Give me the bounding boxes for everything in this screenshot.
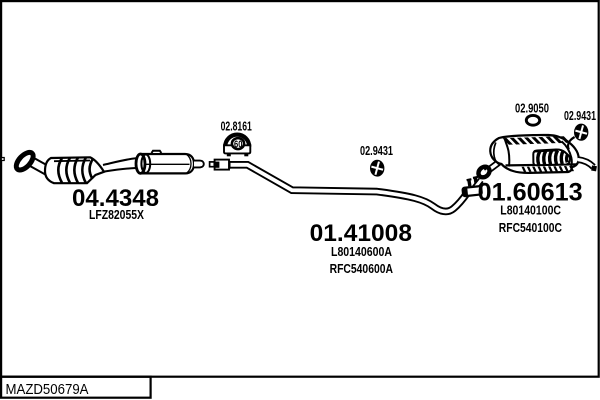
svg-text:02.9431: 02.9431 <box>360 143 393 158</box>
svg-text:02.9050: 02.9050 <box>515 101 549 116</box>
svg-text:LFZ82055X: LFZ82055X <box>89 207 144 222</box>
svg-text:02.9431: 02.9431 <box>564 108 596 123</box>
svg-text:L80140600A: L80140600A <box>331 244 392 259</box>
svg-text:01.41008: 01.41008 <box>310 220 412 247</box>
svg-text:L80140100C: L80140100C <box>500 202 561 217</box>
svg-text:60: 60 <box>234 140 243 151</box>
svg-text:RFC540100C: RFC540100C <box>499 220 563 235</box>
svg-text:RFC540600A: RFC540600A <box>330 261 394 276</box>
svg-text:MAZD50679A: MAZD50679A <box>6 382 89 398</box>
svg-text:02.8161: 02.8161 <box>221 118 252 133</box>
